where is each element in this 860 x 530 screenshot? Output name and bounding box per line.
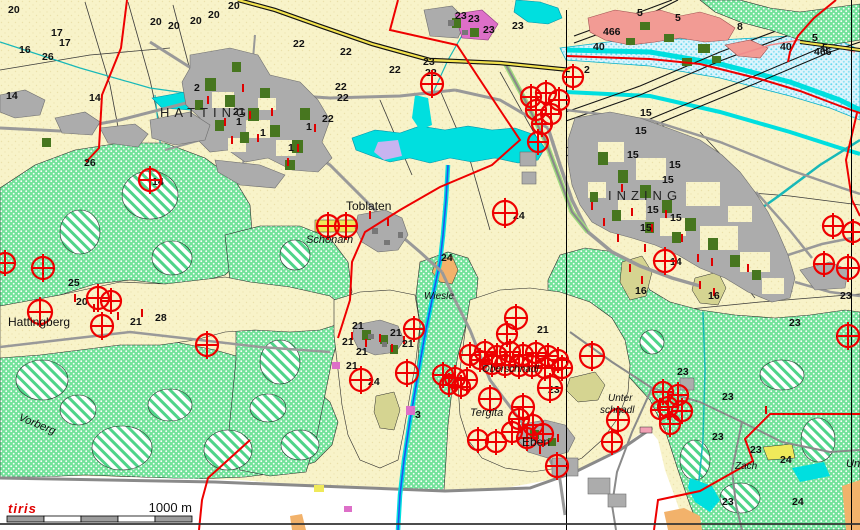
parcel-number: 23	[512, 20, 524, 32]
parcel-number: 21	[342, 336, 354, 348]
parcel-number: 2	[584, 64, 590, 76]
place-label: schnadl	[600, 405, 635, 416]
place-label: Zach	[734, 461, 758, 472]
place-label: Wiesle	[424, 291, 454, 302]
place-label: INZING	[608, 188, 682, 203]
parcel-number: 14	[89, 92, 101, 104]
parcel-number: 24	[441, 252, 453, 264]
parcel-number: 8	[737, 21, 743, 33]
parcel-number: 23	[468, 13, 480, 25]
tiris-map-canvas[interactable]: 2020202020202017171616162626141414142211…	[0, 0, 860, 530]
parcel-number: 1	[288, 142, 294, 154]
parcel-number: 20	[168, 20, 180, 32]
parcel-number: 16	[19, 44, 31, 56]
parcel-number: 15	[662, 174, 674, 186]
place-label: Eben	[522, 435, 550, 449]
parcel-number: 16	[635, 285, 647, 297]
parcel-number: 23	[455, 10, 467, 22]
parcel-number: 23	[789, 317, 801, 329]
parcel-number: 21	[537, 324, 549, 336]
parcel-number: 21	[390, 327, 402, 339]
parcel-number: 22	[322, 113, 334, 125]
parcel-number: 40	[593, 41, 605, 53]
parcel-number: 15	[635, 125, 647, 137]
parcel-number: 23	[750, 444, 762, 456]
parcel-number: 5	[637, 7, 643, 19]
parcel-number: 20	[228, 0, 240, 12]
map-viewport[interactable]: 2020202020202017171616162626141414142211…	[0, 0, 860, 530]
place-label: Un	[846, 458, 860, 470]
parcel-number: 20	[190, 15, 202, 27]
parcel-number: 21	[130, 316, 142, 328]
parcel-number: 15	[647, 204, 659, 216]
parcel-number: 28	[155, 312, 167, 324]
parcel-number: 5	[822, 42, 828, 54]
parcel-number: 26	[84, 157, 96, 169]
parcel-number: 22	[293, 38, 305, 50]
parcel-number: 16	[708, 290, 720, 302]
parcel-number: 3	[415, 409, 421, 421]
parcel-number: 15	[640, 107, 652, 119]
parcel-number: 21	[356, 346, 368, 358]
parcel-number: 22	[340, 46, 352, 58]
parcel-number: 23	[840, 290, 852, 302]
parcel-number: 20	[208, 9, 220, 21]
parcel-number: 23	[712, 431, 724, 443]
parcel-number: 5	[812, 32, 818, 44]
parcel-number: 23	[677, 366, 689, 378]
parcel-number: 15	[670, 212, 682, 224]
parcel-number: 23	[722, 391, 734, 403]
tiris-logo: tiris	[8, 501, 37, 516]
parcel-number: 24	[792, 496, 804, 508]
parcel-number: 17	[59, 37, 71, 49]
place-label: Oberschnadl	[482, 364, 539, 375]
parcel-number: 20	[150, 16, 162, 28]
parcel-number: 25	[68, 277, 80, 289]
place-label: Schönarn	[306, 234, 353, 246]
parcel-number: 20	[8, 4, 20, 16]
parcel-number: 14	[6, 90, 18, 102]
parcel-number: 26	[42, 51, 54, 63]
place-label: Unter	[608, 393, 633, 404]
parcel-number: 24	[780, 454, 792, 466]
parcel-number: 1	[260, 127, 266, 139]
parcel-number: 15	[669, 159, 681, 171]
parcel-number: 5	[675, 12, 681, 24]
parcel-number: 21	[352, 320, 364, 332]
place-label: Toblaten	[346, 199, 391, 213]
parcel-number: 2	[194, 82, 200, 94]
parcel-number: 15	[640, 222, 652, 234]
place-label: Hattingberg	[8, 315, 70, 329]
parcel-number: 1	[306, 121, 312, 133]
parcel-number: 40	[780, 41, 792, 53]
parcel-number: 22	[337, 92, 349, 104]
parcel-number: 466	[603, 26, 621, 38]
parcel-number: 23	[722, 496, 734, 508]
parcel-number: 23	[423, 56, 435, 68]
parcel-number: 15	[627, 149, 639, 161]
scale-bar-label: 1000 m	[149, 500, 192, 515]
parcel-number: 22	[389, 64, 401, 76]
place-label: HATTING	[160, 105, 251, 120]
parcel-number: 23	[483, 24, 495, 36]
place-label: Tergita	[470, 407, 503, 419]
